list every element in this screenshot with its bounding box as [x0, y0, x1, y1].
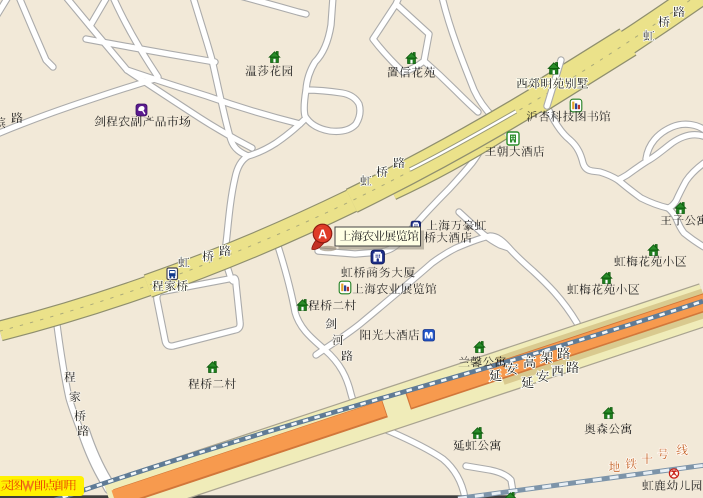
svg-text:A: A — [318, 227, 327, 241]
